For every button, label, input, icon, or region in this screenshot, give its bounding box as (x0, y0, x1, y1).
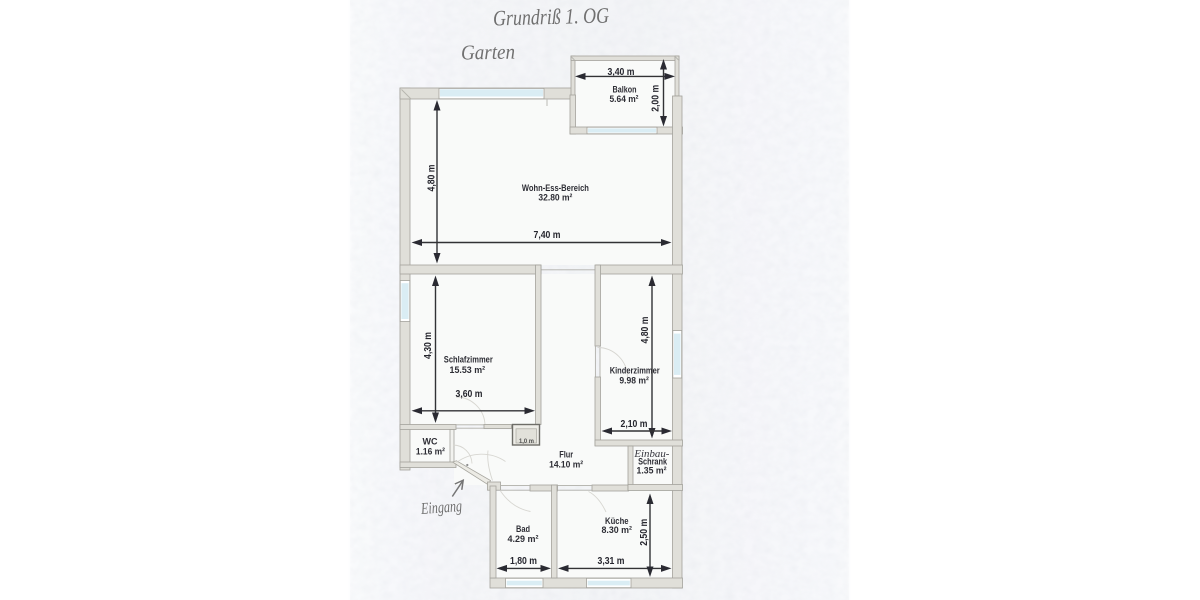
svg-text:7,40 m: 7,40 m (534, 230, 561, 241)
svg-text:1,0 m: 1,0 m (519, 438, 534, 445)
svg-text:4,80 m: 4,80 m (427, 164, 438, 191)
svg-text:2,00 m: 2,00 m (650, 85, 661, 112)
svg-text:1,80 m: 1,80 m (510, 556, 537, 567)
svg-text:3,60 m: 3,60 m (456, 389, 483, 400)
svg-text:3,31 m: 3,31 m (598, 556, 625, 567)
svg-text:4,80 m: 4,80 m (640, 316, 651, 343)
svg-text:1.35 m²: 1.35 m² (637, 466, 667, 477)
svg-text:4,30 m: 4,30 m (423, 332, 434, 359)
svg-text:32.80 m²: 32.80 m² (538, 192, 572, 203)
svg-text:Eingang: Eingang (420, 496, 463, 518)
svg-text:4.29 m²: 4.29 m² (508, 534, 539, 545)
svg-text:9.98 m²: 9.98 m² (619, 375, 649, 386)
svg-text:15.53 m²: 15.53 m² (450, 365, 486, 376)
svg-text:14.10 m²: 14.10 m² (549, 460, 583, 471)
svg-text:Grundriß 1. OG: Grundriß 1. OG (493, 2, 610, 30)
svg-text:5.64 m²: 5.64 m² (610, 94, 639, 105)
svg-text:2,10 m: 2,10 m (621, 419, 648, 430)
svg-text:1.16 m²: 1.16 m² (416, 447, 445, 458)
svg-text:2,50 m: 2,50 m (639, 519, 650, 546)
svg-text:8.30 m²: 8.30 m² (601, 525, 632, 536)
svg-text:Schlafzimmer: Schlafzimmer (444, 354, 493, 365)
svg-text:Garten: Garten (461, 40, 515, 65)
